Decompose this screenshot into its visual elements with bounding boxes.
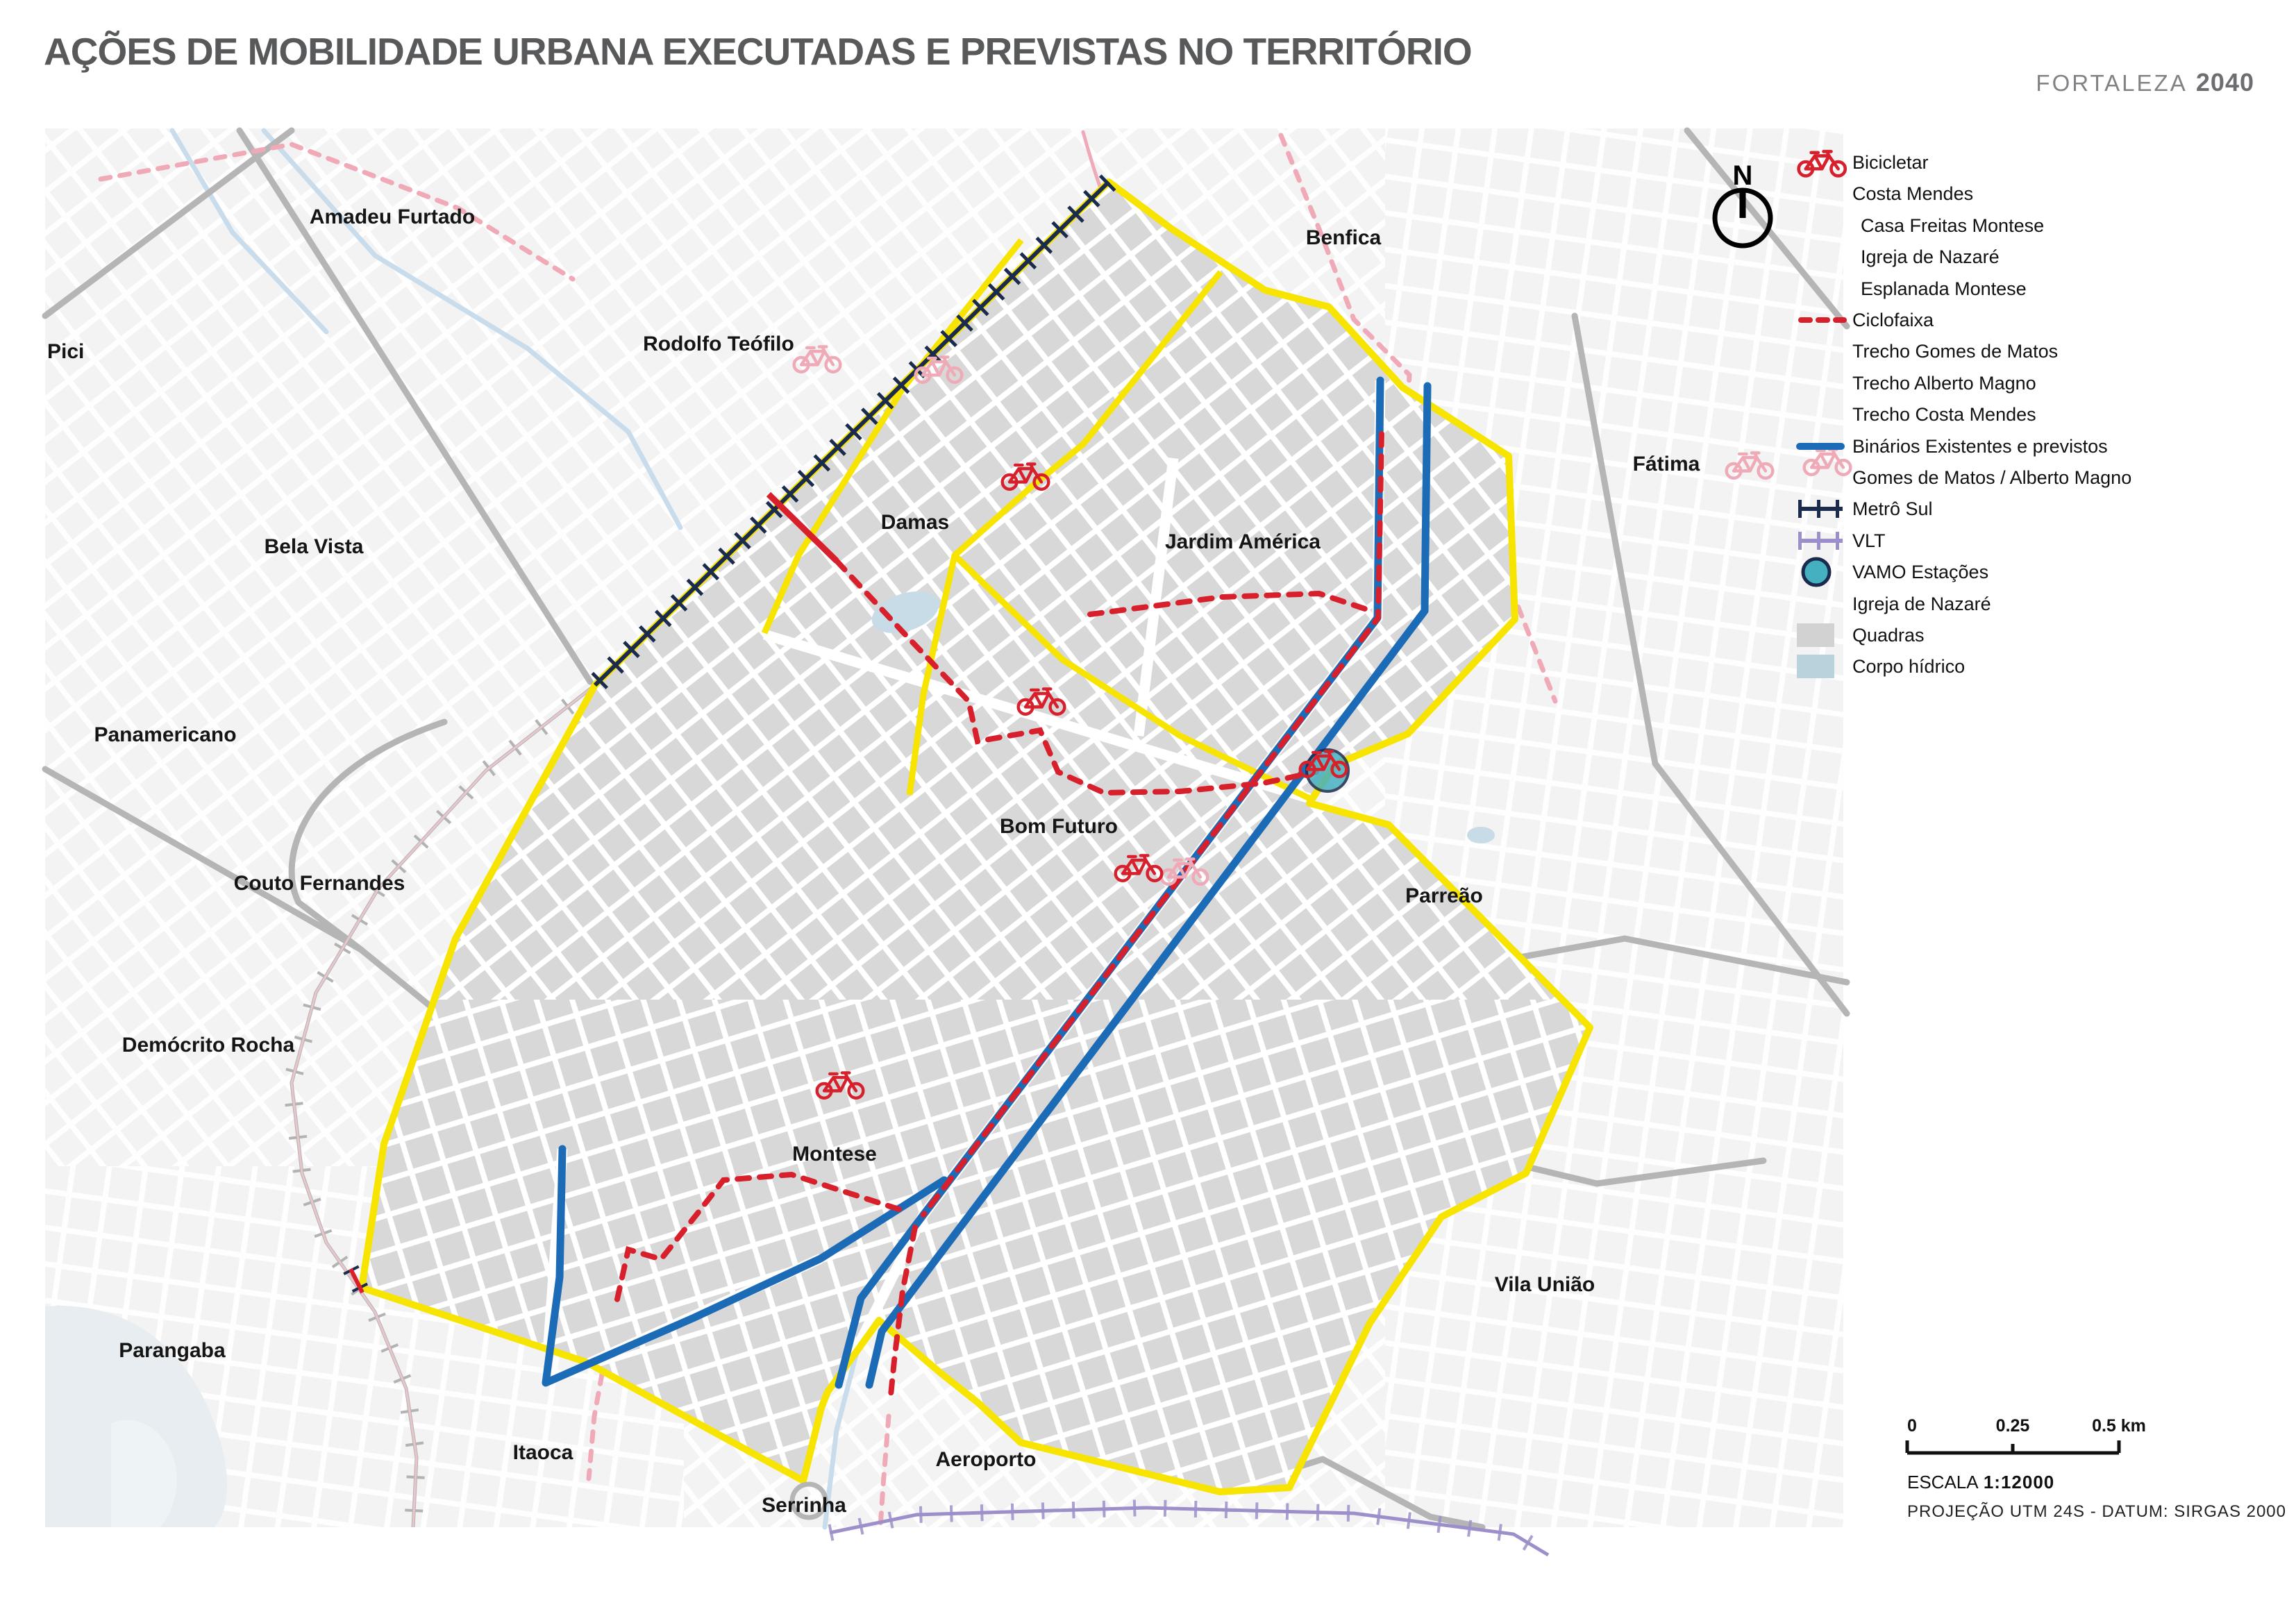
- square-blue-legend-icon: [1795, 651, 1852, 682]
- legend-item-label: Costa Mendes: [1852, 183, 1973, 205]
- legend-item-label: Trecho Alberto Magno: [1852, 373, 2036, 394]
- legend-item-label: Igreja de Nazaré: [1852, 594, 1991, 615]
- legend-item-metro-sul: Metrô Sul: [1795, 494, 1933, 524]
- legend-item-ciclofaixa: Ciclofaixa: [1795, 305, 1934, 335]
- legend-item-vamo-estacoes: VAMO Estações: [1795, 557, 1988, 587]
- vlt-legend-icon: [1795, 525, 1852, 556]
- legend-spacer: [1795, 368, 1852, 398]
- circle-teal-legend-icon: [1795, 557, 1852, 587]
- map-label-benfica: Benfica: [1306, 226, 1382, 249]
- brand-logo: FORTALEZA 2040: [2036, 68, 2254, 97]
- map-label-montese: Montese: [792, 1143, 877, 1166]
- legend-item-corpo-hidrico: Corpo hídrico: [1795, 651, 1965, 682]
- legend-item-esplanada-montese: Esplanada Montese: [1804, 274, 2027, 304]
- brand-name: FORTALEZA: [2036, 70, 2187, 96]
- legend-item-quadras: Quadras: [1795, 620, 1925, 650]
- map-label-parreao: Parreão: [1405, 884, 1483, 907]
- legend-item-label: Corpo hídrico: [1852, 656, 1965, 678]
- map-label-bom-futuro: Bom Futuro: [1000, 815, 1118, 838]
- map-label-democrito-rocha: Demócrito Rocha: [122, 1034, 295, 1057]
- map-label-damas: Damas: [881, 511, 949, 534]
- scale-tick-label: 0: [1907, 1416, 1917, 1436]
- projection-text: PROJEÇÃO UTM 24S - DATUM: SIRGAS 2000: [1907, 1502, 2286, 1522]
- legend-item-binarios-existentes-e-previstos: Binários Existentes e previstos: [1795, 431, 2108, 462]
- legend-item-label: Esplanada Montese: [1861, 278, 2027, 300]
- brand-year: 2040: [2196, 68, 2254, 96]
- legend-spacer: [1795, 399, 1852, 430]
- dash-red-legend-icon: [1795, 305, 1852, 335]
- bike-legend-icon: [1795, 147, 1852, 178]
- legend-item-label: Bicicletar: [1852, 152, 1929, 174]
- legend-item-bicicletar: Bicicletar: [1795, 147, 1929, 178]
- legend: BicicletarCosta MendesCasa Freitas Monte…: [1795, 147, 2292, 696]
- legend-item-label: Trecho Costa Mendes: [1852, 404, 2036, 426]
- line-blue-legend-icon: [1795, 431, 1852, 462]
- map-label-itaoca: Itaoca: [513, 1441, 573, 1464]
- map-label-couto-fernandes: Couto Fernandes: [234, 872, 405, 895]
- legend-spacer: [1795, 589, 1852, 619]
- legend-item-label: Gomes de Matos / Alberto Magno: [1852, 467, 2131, 489]
- legend-item-label: Metrô Sul: [1852, 498, 1933, 520]
- square-gray-legend-icon: [1795, 620, 1852, 650]
- map-label-pici: Pici: [47, 340, 84, 363]
- map-label-panamericano: Panamericano: [94, 723, 236, 746]
- legend-item-trecho-gomes-de-matos: Trecho Gomes de Matos: [1795, 336, 2058, 367]
- scale-text: ESCALA 1:12000: [1907, 1472, 2054, 1493]
- map-label-parangaba: Parangaba: [119, 1339, 226, 1362]
- escala-label: ESCALA: [1907, 1472, 1979, 1492]
- legend-item-label: Casa Freitas Montese: [1861, 215, 2044, 237]
- legend-item-vlt: VLT: [1795, 525, 1886, 556]
- north-letter: N: [1733, 161, 1753, 191]
- legend-item-trecho-alberto-magno: Trecho Alberto Magno: [1795, 368, 2036, 398]
- scale-tick-label: 0.5 km: [2092, 1416, 2146, 1436]
- map-label-fatima: Fátima: [1633, 453, 1700, 476]
- map-label-vila-uniao: Vila União: [1495, 1273, 1595, 1296]
- legend-item-label: Igreja de Nazaré: [1861, 246, 2000, 268]
- north-arrow: N: [1709, 161, 1779, 251]
- map-label-aeroporto: Aeroporto: [936, 1448, 1037, 1471]
- map-label-bela-vista: Bela Vista: [265, 535, 364, 558]
- legend-item-label: Binários Existentes e previstos: [1852, 436, 2108, 457]
- legend-item-casa-freitas-montese: Casa Freitas Montese: [1804, 210, 2044, 241]
- map-label-serrinha: Serrinha: [762, 1494, 846, 1517]
- legend-spacer: [1795, 178, 1852, 209]
- legend-spacer: [1804, 274, 1861, 304]
- legend-spacer: [1795, 336, 1852, 367]
- legend-spacer: [1804, 242, 1861, 272]
- legend-item-costa-mendes: Costa Mendes: [1795, 178, 1973, 209]
- legend-spacer: [1804, 210, 1861, 241]
- escala-value: 1:12000: [1984, 1472, 2054, 1492]
- legend-item-igreja-de-nazare: Igreja de Nazaré: [1804, 242, 2000, 272]
- legend-item-igreja-de-nazare: Igreja de Nazaré: [1795, 589, 1991, 619]
- legend-item-label: Trecho Gomes de Matos: [1852, 341, 2058, 362]
- legend-spacer: [1795, 462, 1852, 493]
- scale-bar: [1907, 1440, 2119, 1453]
- pond-parreao: [1467, 827, 1495, 843]
- map-label-amadeu-furtado: Amadeu Furtado: [310, 205, 475, 228]
- scale-tick-label: 0.25: [1996, 1416, 2030, 1436]
- map-label-rodolfo-teofilo: Rodolfo Teófilo: [643, 333, 794, 355]
- legend-item-label: Ciclofaixa: [1852, 310, 1934, 331]
- legend-item-trecho-costa-mendes: Trecho Costa Mendes: [1795, 399, 2036, 430]
- legend-item-gomes-de-matos-alberto-magno: Gomes de Matos / Alberto Magno: [1795, 462, 2131, 493]
- legend-item-label: VAMO Estações: [1852, 562, 1988, 583]
- legend-item-label: VLT: [1852, 530, 1886, 552]
- map-poster: PiciAmadeu FurtadoRodolfo TeófiloBenfica…: [0, 0, 2296, 1623]
- page-title: AÇÕES DE MOBILIDADE URBANA EXECUTADAS E …: [44, 29, 1472, 74]
- map-label-jardim-america: Jardim América: [1165, 530, 1321, 553]
- legend-item-label: Quadras: [1852, 625, 1925, 646]
- metro-legend-icon: [1795, 494, 1852, 524]
